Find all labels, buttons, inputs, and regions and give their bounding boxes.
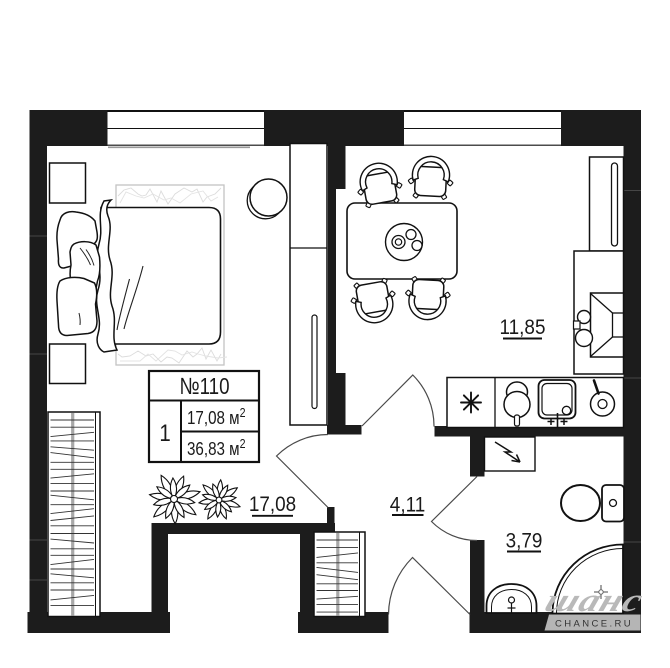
svg-text:3,79: 3,79 [506,529,543,552]
svg-text:шанс: шанс [540,583,649,619]
svg-text:17,08: 17,08 [249,493,296,516]
svg-text:№110: №110 [179,373,229,400]
svg-text:11,85: 11,85 [500,316,546,339]
svg-text:CHANCE.RU: CHANCE.RU [555,619,633,630]
svg-text:36,83 м2: 36,83 м2 [187,436,246,459]
svg-text:1: 1 [159,419,170,446]
svg-text:4,11: 4,11 [390,493,425,516]
svg-text:17,08 м2: 17,08 м2 [187,405,246,428]
